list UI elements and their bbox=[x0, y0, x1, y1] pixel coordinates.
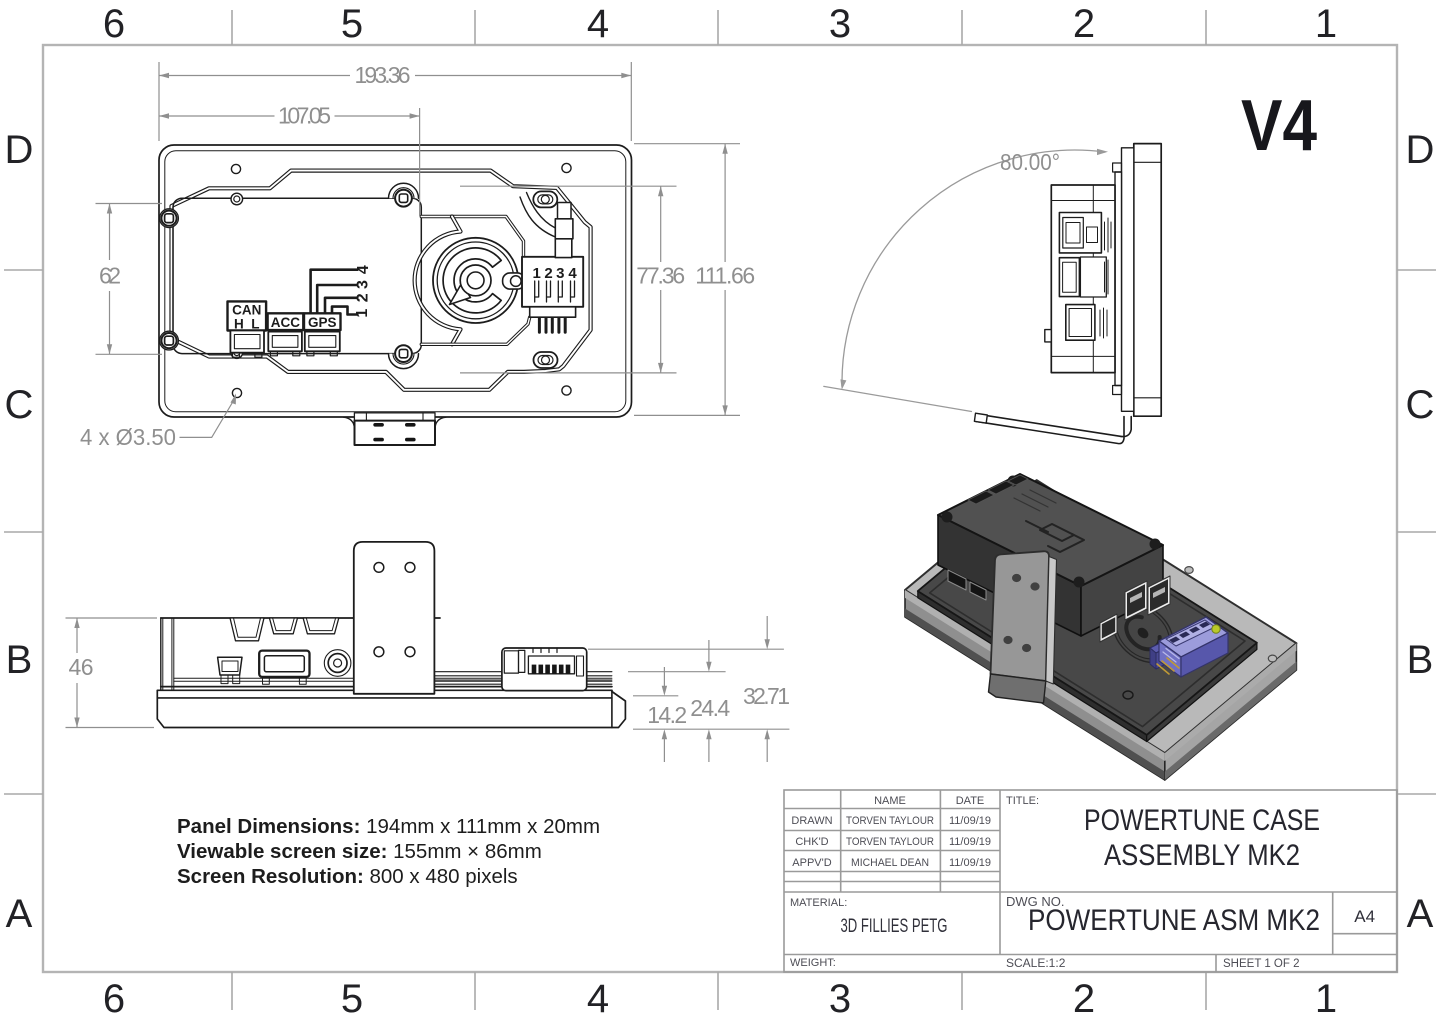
svg-text:5: 5 bbox=[341, 977, 363, 1021]
svg-text:MICHAEL DEAN: MICHAEL DEAN bbox=[851, 857, 929, 869]
svg-text:1: 1 bbox=[533, 265, 541, 282]
svg-text:NAME: NAME bbox=[874, 795, 906, 807]
svg-text:A: A bbox=[1407, 892, 1434, 936]
svg-text:H L: H L bbox=[234, 317, 260, 332]
svg-text:POWERTUNE ASM MK2: POWERTUNE ASM MK2 bbox=[1028, 904, 1320, 937]
svg-text:APPV'D: APPV'D bbox=[792, 857, 831, 869]
svg-text:2: 2 bbox=[355, 293, 372, 302]
svg-text:4: 4 bbox=[568, 265, 577, 282]
svg-text:4: 4 bbox=[587, 2, 609, 46]
svg-text:POWERTUNE CASE: POWERTUNE CASE bbox=[1084, 804, 1320, 837]
svg-text:C: C bbox=[1406, 383, 1435, 427]
svg-text:DRAWN: DRAWN bbox=[791, 815, 832, 827]
svg-text:3: 3 bbox=[556, 265, 564, 282]
svg-text:C: C bbox=[5, 383, 34, 427]
svg-text:193.36: 193.36 bbox=[355, 62, 411, 88]
svg-text:11/09/19: 11/09/19 bbox=[949, 815, 991, 827]
svg-text:32.71: 32.71 bbox=[743, 683, 790, 709]
svg-text:2: 2 bbox=[1073, 2, 1095, 46]
svg-text:80.00°: 80.00° bbox=[1000, 149, 1060, 175]
svg-text:6: 6 bbox=[103, 977, 125, 1021]
svg-text:B: B bbox=[1407, 638, 1434, 682]
svg-text:62: 62 bbox=[99, 263, 121, 289]
svg-text:V4: V4 bbox=[1241, 86, 1317, 166]
svg-text:B: B bbox=[6, 638, 33, 682]
svg-text:A: A bbox=[6, 892, 33, 936]
svg-text:WEIGHT:: WEIGHT: bbox=[790, 957, 836, 969]
svg-text:Panel Dimensions: 194mm x 111m: Panel Dimensions: 194mm x 111mm x 20mm bbox=[177, 815, 600, 838]
svg-text:ASSEMBLY MK2: ASSEMBLY MK2 bbox=[1104, 839, 1300, 872]
svg-text:3D FILLIES PETG: 3D FILLIES PETG bbox=[841, 916, 948, 937]
svg-text:MATERIAL:: MATERIAL: bbox=[790, 897, 847, 909]
svg-text:ACC: ACC bbox=[271, 315, 300, 330]
svg-text:11/09/19: 11/09/19 bbox=[949, 836, 991, 848]
svg-text:5: 5 bbox=[341, 2, 363, 46]
svg-text:1: 1 bbox=[354, 309, 371, 318]
svg-text:2: 2 bbox=[544, 265, 552, 282]
svg-text:3: 3 bbox=[829, 977, 851, 1021]
svg-text:3: 3 bbox=[829, 2, 851, 46]
svg-text:CAN: CAN bbox=[232, 303, 261, 318]
svg-text:TORVEN TAYLOUR: TORVEN TAYLOUR bbox=[846, 815, 934, 827]
svg-text:GPS: GPS bbox=[308, 315, 337, 330]
svg-text:Screen Resolution: 800 x 480 p: Screen Resolution: 800 x 480 pixels bbox=[177, 865, 518, 888]
svg-text:6: 6 bbox=[103, 2, 125, 46]
svg-text:24.4: 24.4 bbox=[690, 695, 730, 721]
svg-text:TITLE:: TITLE: bbox=[1006, 795, 1039, 807]
svg-text:1: 1 bbox=[1315, 2, 1337, 46]
svg-text:2: 2 bbox=[1073, 977, 1095, 1021]
svg-text:1: 1 bbox=[1315, 977, 1337, 1021]
svg-text:Viewable screen size: 155mm ×: Viewable screen size: 155mm × 86mm bbox=[177, 840, 542, 863]
svg-text:A4: A4 bbox=[1354, 907, 1375, 926]
svg-text:77.36: 77.36 bbox=[636, 263, 685, 289]
svg-text:4: 4 bbox=[355, 265, 372, 274]
svg-text:TORVEN TAYLOUR: TORVEN TAYLOUR bbox=[846, 836, 934, 848]
svg-text:4: 4 bbox=[587, 977, 609, 1021]
svg-text:D: D bbox=[5, 128, 34, 172]
svg-text:DATE: DATE bbox=[956, 795, 985, 807]
svg-text:3: 3 bbox=[355, 280, 372, 289]
svg-text:CHK'D: CHK'D bbox=[795, 836, 828, 848]
svg-text:107.05: 107.05 bbox=[278, 103, 331, 129]
svg-text:14.2: 14.2 bbox=[647, 702, 687, 728]
svg-text:D: D bbox=[1406, 128, 1435, 172]
svg-text:SHEET 1 OF 2: SHEET 1 OF 2 bbox=[1223, 958, 1299, 970]
svg-text:111.66: 111.66 bbox=[695, 263, 755, 289]
svg-text:11/09/19: 11/09/19 bbox=[949, 857, 991, 869]
svg-text:46: 46 bbox=[69, 654, 94, 680]
svg-text:SCALE:1:2: SCALE:1:2 bbox=[1006, 956, 1066, 970]
svg-text:4 x Ø3.50: 4 x Ø3.50 bbox=[80, 424, 176, 450]
